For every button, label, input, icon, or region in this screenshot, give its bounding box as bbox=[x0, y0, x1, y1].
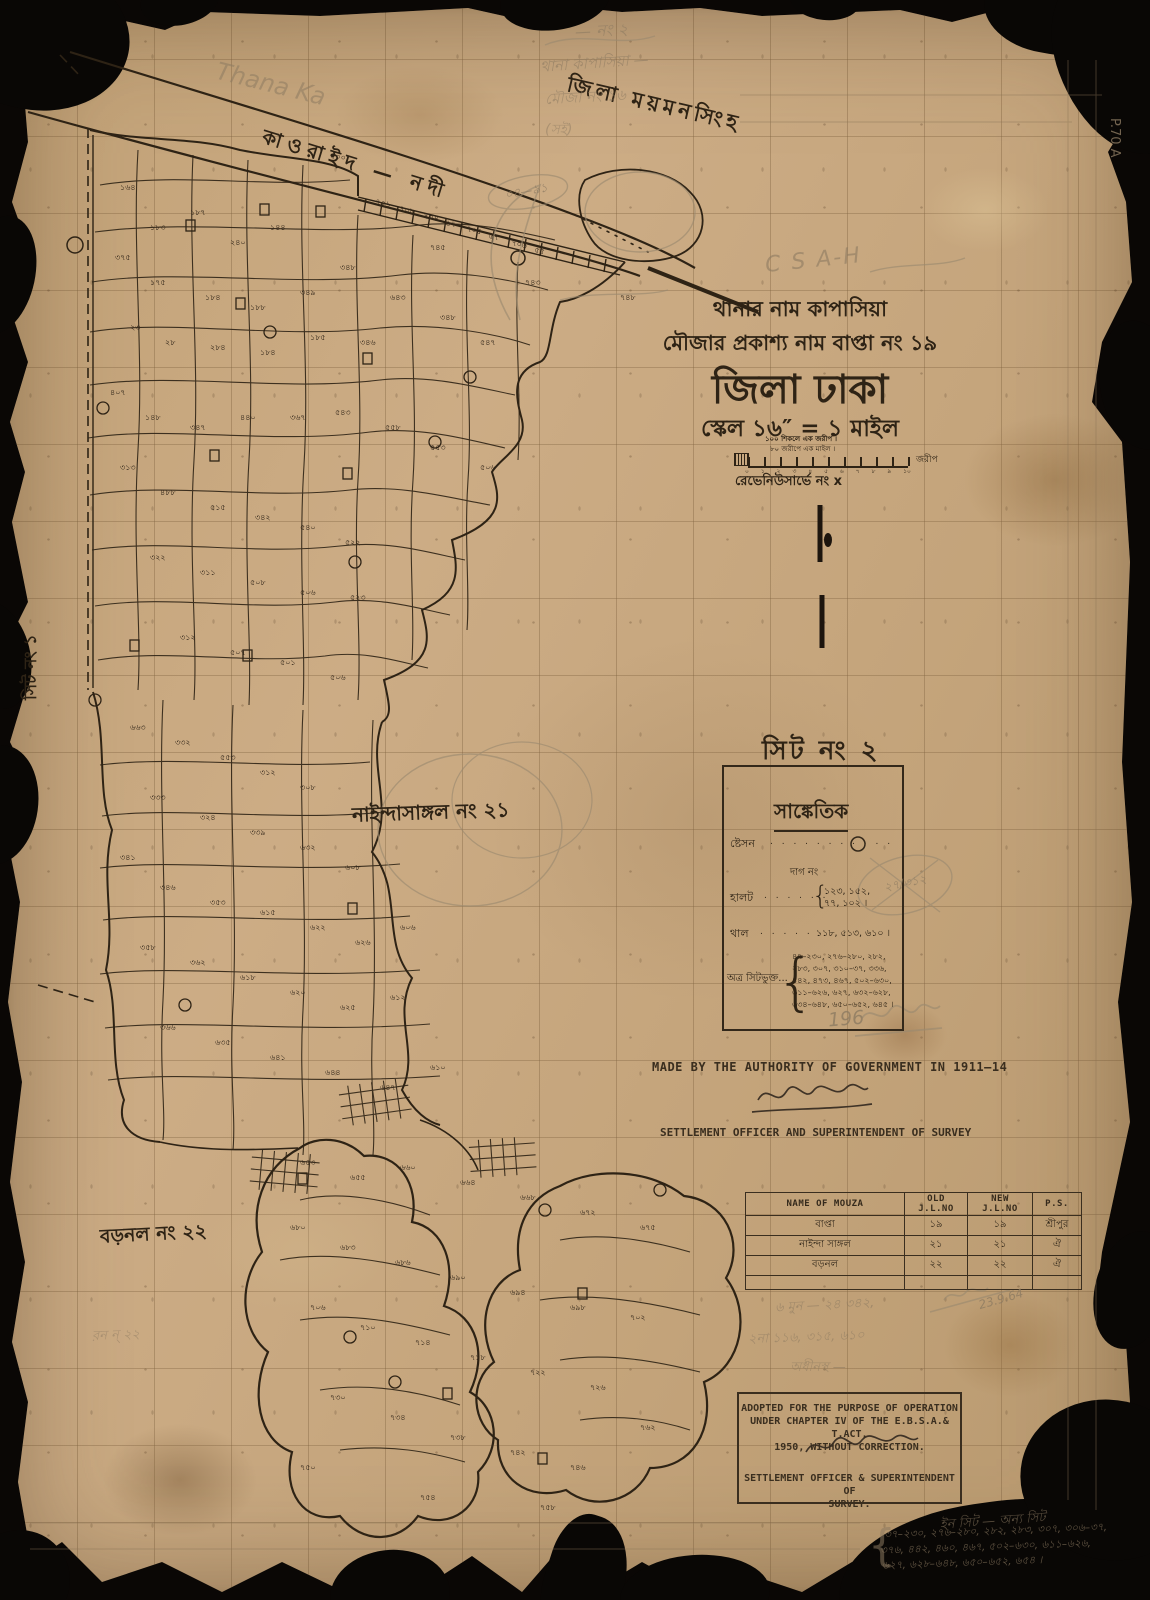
scalebar-tick bbox=[828, 457, 830, 466]
plot-number: ৭৪৩ bbox=[525, 278, 541, 287]
plot-number: ৫৪৩ bbox=[335, 408, 351, 417]
sheet-no-1-side-label: সিট নং ১ bbox=[18, 634, 46, 700]
cell-ps: ঐ bbox=[1033, 1236, 1082, 1256]
plot-number: ৭৫০ bbox=[300, 1463, 316, 1472]
plot-number: ৬০৬ bbox=[400, 923, 416, 932]
adoption-stamp-box: ADOPTED FOR THE PURPOSE OF OPERATION UND… bbox=[737, 1392, 962, 1504]
plot-number: ৬৫৩ bbox=[300, 1158, 316, 1167]
stamp-officer-line-1: SETTLEMENT OFFICER & SUPERINTENDENT OF bbox=[739, 1472, 960, 1498]
plot-number: ৩৫৩ bbox=[210, 898, 226, 907]
table-row: নাইন্দা সাঙ্গল ২১ ২১ ঐ bbox=[746, 1236, 1082, 1256]
plot-number: ৬৫৫ bbox=[350, 1173, 366, 1182]
cell-old-jl: ২১ bbox=[905, 1236, 968, 1256]
mouza22-label: বড়নল নং ২২ bbox=[99, 1217, 208, 1255]
cell-empty bbox=[746, 1276, 905, 1290]
plot-number: ৭৩৪ bbox=[390, 1413, 406, 1422]
cell-empty bbox=[968, 1276, 1033, 1290]
plot-number: ২৩ bbox=[130, 323, 140, 332]
plot-number: ৫২৩ bbox=[350, 593, 366, 602]
pencil-top-4: (সই) bbox=[545, 118, 572, 142]
made-by-line: MADE BY THE AUTHORITY OF GOVERNMENT IN 1… bbox=[652, 1060, 1007, 1074]
plot-number: ৩৩৩ bbox=[150, 793, 166, 802]
scalebar-tick bbox=[892, 457, 894, 466]
legend-halot-label: হালট bbox=[730, 889, 753, 908]
plot-number: ৫৫৮ bbox=[385, 423, 401, 432]
plot-number: ৩৪৯ bbox=[300, 288, 316, 297]
stamp-signature-space bbox=[739, 1454, 960, 1472]
plot-number: ৬৭৫ bbox=[640, 1223, 656, 1232]
plot-number: ৩৪৮ bbox=[440, 313, 456, 322]
ink-fold-marks bbox=[820, 505, 832, 648]
cell-mouza-name: বড়নল bbox=[746, 1256, 905, 1276]
plot-number: ৩৬৬ bbox=[160, 1023, 176, 1032]
plot-number: ৩০৮ bbox=[300, 783, 316, 792]
plot-number: ৭৬২ bbox=[640, 1423, 656, 1432]
plot-number: ৭১৮ bbox=[470, 1353, 486, 1362]
settlement-officer-line: SETTLEMENT OFFICER AND SUPERINTENDENT OF… bbox=[660, 1126, 971, 1139]
plot-number: ৬২৫ bbox=[340, 1003, 356, 1012]
plot-number: ৭০৬ bbox=[310, 1303, 326, 1312]
plot-number: ৬৯০ bbox=[450, 1273, 466, 1282]
cell-old-jl: ১৯ bbox=[905, 1216, 968, 1236]
plot-number: ৭৪২ bbox=[510, 1448, 526, 1457]
cell-mouza-name: নাইন্দা সাঙ্গল bbox=[746, 1236, 905, 1256]
plot-number: ৩৩৯ bbox=[250, 828, 266, 837]
scalebar-tick-label: ১০ bbox=[903, 466, 911, 477]
header-mouza-line: মৌজার প্রকাশ্য নাম বাপ্তা নং ১৯ bbox=[620, 327, 980, 362]
plot-number: ১৪৪ bbox=[270, 223, 286, 232]
scalebar-tick bbox=[908, 457, 910, 466]
plot-number: ৭৪৫ bbox=[430, 243, 446, 252]
plot-number: ৬৯৮ bbox=[570, 1303, 586, 1312]
plot-number: ৪০৭ bbox=[110, 388, 126, 397]
plot-number: ৬০৮ bbox=[345, 863, 361, 872]
plot-number: ২৮ bbox=[165, 338, 176, 347]
cell-old-jl: ২২ bbox=[905, 1256, 968, 1276]
stamp-line-2: UNDER CHAPTER IV OF THE E.B.S.A.& T.ACT, bbox=[739, 1415, 960, 1441]
table-row: বাপ্তা ১৯ ১৯ শ্রীপুর bbox=[746, 1216, 1082, 1236]
table-header-row: NAME OF MOUZA OLD J.L.NO NEW J.L.NO P.S. bbox=[746, 1193, 1082, 1216]
plot-number: ১৮৮ bbox=[250, 303, 266, 312]
legend-thal-label: থাল bbox=[730, 925, 749, 944]
plot-number: ৭৫৮ bbox=[540, 1503, 556, 1512]
plot-number: ৭১০ bbox=[360, 1323, 376, 1332]
plot-number: ৫০৬ bbox=[480, 463, 496, 472]
plot-number: ৭৫৪ bbox=[420, 1493, 436, 1502]
plot-number: ৭২৬ bbox=[590, 1383, 606, 1392]
scalebar-tick-label: ৯ bbox=[887, 466, 891, 477]
plot-number: ৫২২ bbox=[345, 538, 361, 547]
plot-number: ৬৪৩ bbox=[390, 293, 406, 302]
plot-number: ৬৮০ bbox=[290, 1223, 306, 1232]
mouza21-label: নাইন্দাসাঙ্গল নং ২১ bbox=[351, 795, 510, 833]
cell-new-jl: ২২ bbox=[968, 1256, 1033, 1276]
col-name-of-mouza: NAME OF MOUZA bbox=[746, 1193, 905, 1216]
plot-number: ৩৭৫ bbox=[115, 253, 131, 262]
plot-number: ৬৯৪ bbox=[510, 1288, 526, 1297]
plot-number: ৩৪৬ bbox=[360, 338, 376, 347]
cell-ps: শ্রীপুর bbox=[1033, 1216, 1082, 1236]
plot-number: ৫৪০ bbox=[300, 523, 316, 532]
plot-number: ৫৪৭ bbox=[480, 338, 496, 347]
plot-number: ৬৬০ bbox=[400, 1163, 416, 1172]
plot-number: ৫০৮ bbox=[250, 578, 266, 587]
pencil-196: 196 bbox=[827, 1006, 865, 1031]
plot-number: ৩৫৮ bbox=[140, 943, 156, 952]
scale-bar-hatch bbox=[734, 453, 749, 466]
plot-number: ১৮৭ bbox=[190, 208, 206, 217]
col-old-jl-no: OLD J.L.NO bbox=[905, 1193, 968, 1216]
plate-number: P.70 A bbox=[1107, 118, 1122, 158]
plot-number: ৬১৫ bbox=[260, 908, 276, 917]
legend-halot-values-2: ৭৭, ১০২ । bbox=[824, 897, 867, 912]
plot-number: ৬৪১ bbox=[270, 1053, 286, 1062]
plot-number: ৫০৬ bbox=[330, 673, 346, 682]
scalebar-tick bbox=[860, 457, 862, 466]
revenue-survey-line: রেভেনিউসার্ভে নং x bbox=[735, 472, 842, 493]
scalebar-tick bbox=[780, 457, 782, 466]
plot-number: ১৪৮ bbox=[145, 413, 161, 422]
plot-number: ৩২৪ bbox=[200, 813, 216, 822]
plot-number: ৪৮৮ bbox=[160, 488, 176, 497]
plot-number: ৬৮৬ bbox=[395, 1258, 411, 1267]
plot-number: ৫১৫ bbox=[210, 503, 226, 512]
plot-number: ৩৪১ bbox=[120, 853, 136, 862]
legend-thal-values: ১১৮, ৫১৩, ৬১০ । bbox=[816, 927, 890, 942]
plot-number: ৩১২ bbox=[180, 633, 196, 642]
plot-number: ৩২২ bbox=[150, 553, 166, 562]
stamp-officer-line-2: SURVEY. bbox=[739, 1498, 960, 1511]
plot-number: ৭৩০ bbox=[330, 1393, 346, 1402]
plot-number: ৩৬২ bbox=[190, 958, 206, 967]
cell-mouza-name: বাপ্তা bbox=[746, 1216, 905, 1236]
scalebar-tick bbox=[876, 457, 878, 466]
cell-empty bbox=[1033, 1276, 1082, 1290]
pencil-top-1: — নং ২ bbox=[574, 17, 628, 47]
mouza-table: NAME OF MOUZA OLD J.L.NO NEW J.L.NO P.S.… bbox=[745, 1192, 1082, 1290]
plot-number: ২৪০ bbox=[230, 238, 246, 247]
legend-box: সাঙ্কেতিক ষ্টেসন . . . . . . . . . . . দ… bbox=[722, 765, 904, 1031]
scalebar-tick bbox=[748, 457, 750, 466]
stamp-line-3: 1950, WITHOUT CORRECTION. bbox=[739, 1441, 960, 1454]
legend-thal-dots: . . . . . . bbox=[760, 927, 824, 937]
scanned-map-sheet: ৭০১৭০৮৭০৪৬৭৭০৫৫৭৭০৬৫৫৫০০১৬৪১৮৩১৮৭২৪০১৪৪৩… bbox=[0, 0, 1150, 1600]
scalebar-unit: জরীপ bbox=[916, 452, 938, 467]
plot-number: ৭২২ bbox=[530, 1368, 546, 1377]
margin-lines bbox=[30, 60, 1102, 1549]
plot-number: ১৭৫ bbox=[150, 278, 166, 287]
stamp-line-1: ADOPTED FOR THE PURPOSE OF OPERATION bbox=[739, 1402, 960, 1415]
plot-number: ৬২৬ bbox=[355, 938, 371, 947]
plot-number: ৩১৩ bbox=[120, 463, 136, 472]
plot-number: ৩১২ bbox=[260, 768, 276, 777]
map-linework: ৭০১৭০৮৭০৪৬৭৭০৫৫৭৭০৬৫৫৫০০১৬৪১৮৩১৮৭২৪০১৪৪৩… bbox=[0, 0, 1150, 1600]
plot-number: ৭১৪ bbox=[415, 1338, 431, 1347]
plot-number: ৬৪৪ bbox=[325, 1068, 341, 1077]
plot-number: ১৮৩ bbox=[150, 223, 166, 232]
plot-number: ৫৫৩ bbox=[220, 753, 236, 762]
plot-number: ৩৬৭ bbox=[290, 413, 306, 422]
plot-number: ৬৮৩ bbox=[340, 1243, 356, 1252]
plot-number: ৬৭ bbox=[445, 218, 457, 229]
plot-number: ৭০৪ bbox=[423, 211, 440, 223]
scalebar-tick bbox=[844, 457, 846, 466]
plot-number: ৬১০ bbox=[430, 1063, 446, 1072]
plot-number: ৬৬৮ bbox=[520, 1193, 536, 1202]
table-row-empty bbox=[746, 1276, 1082, 1290]
scalebar-tick bbox=[796, 457, 798, 466]
plot-number: ৭০২ bbox=[630, 1313, 646, 1322]
table-row: বড়নল ২২ ২২ ঐ bbox=[746, 1256, 1082, 1276]
cell-empty bbox=[905, 1276, 968, 1290]
col-new-jl-no: NEW J.L.NO bbox=[968, 1193, 1033, 1216]
plot-number: ২৮৪ bbox=[210, 343, 226, 352]
plot-number: ১৮৪ bbox=[205, 293, 221, 302]
plot-number: ৫০৬ bbox=[300, 588, 316, 597]
plot-number: ৬৬৪ bbox=[460, 1178, 476, 1187]
plot-number: ৩৩২ bbox=[175, 738, 191, 747]
plot-number: ৭০৮ bbox=[399, 204, 417, 216]
pencil-below-table-3: অধীনস্থ — bbox=[790, 1358, 846, 1379]
plot-number: ৬৬৩ bbox=[130, 723, 146, 732]
scalebar-tick-label: ৮ bbox=[872, 466, 876, 477]
plot-number: ৩৪৮ bbox=[340, 263, 356, 272]
plot-number: ৬২০ bbox=[290, 988, 306, 997]
plot-number: ৫৭ bbox=[488, 231, 500, 242]
plot-number: ৬৭২ bbox=[580, 1208, 596, 1217]
plot-number: ১৮৪ bbox=[260, 348, 276, 357]
plot-number: ৬১৮ bbox=[240, 973, 256, 982]
plot-number: ৭৪৬ bbox=[570, 1463, 586, 1472]
scalebar-tick-label: ৭ bbox=[856, 466, 860, 477]
plot-number: ৬৪৭ bbox=[380, 1083, 396, 1092]
scalebar-tick bbox=[812, 457, 814, 466]
plot-number: ৫০১ bbox=[280, 658, 296, 667]
plot-number: ৩৪৬ bbox=[160, 883, 176, 892]
plot-number: ৬১২ bbox=[390, 993, 406, 1002]
scalebar-tick bbox=[764, 457, 766, 466]
plot-number: ৬৩৫ bbox=[215, 1038, 231, 1047]
pencil-below-table-2: ২না ১১৬, ৩১৫, ৬১০ bbox=[748, 1326, 865, 1351]
col-ps: P.S. bbox=[1033, 1193, 1082, 1216]
plot-number: ৭০১ bbox=[375, 197, 392, 209]
plot-number: ৫০৭ bbox=[230, 648, 246, 657]
plot-number: ৩৪২ bbox=[255, 513, 271, 522]
cell-new-jl: ২১ bbox=[968, 1236, 1033, 1256]
pencil-bottom-left: ব়ন ন্ ২২ bbox=[92, 1325, 141, 1348]
pencil-top-3: মৌজা নং ১৬ bbox=[544, 84, 626, 113]
cell-ps: ঐ bbox=[1033, 1256, 1082, 1276]
plot-number: ৩১১ bbox=[200, 568, 216, 577]
plot-number: ৬২২ bbox=[310, 923, 326, 932]
plot-number: ৩৪৭ bbox=[190, 423, 206, 432]
plot-number: ৭৩৮ bbox=[450, 1433, 466, 1442]
cell-new-jl: ১৯ bbox=[968, 1216, 1033, 1236]
plot-number: ১৬৪ bbox=[120, 183, 136, 192]
plot-number: ৬৩২ bbox=[300, 843, 316, 852]
plot-number: ১৮৫ bbox=[310, 333, 326, 342]
header-thana-line: থানার নাম কাপাসিয়া bbox=[620, 293, 980, 328]
plot-number: ৫৫৩ bbox=[430, 443, 446, 452]
plot-number: ৪৪০ bbox=[240, 413, 256, 422]
legend-dag-label: দাগ নং bbox=[790, 865, 818, 882]
